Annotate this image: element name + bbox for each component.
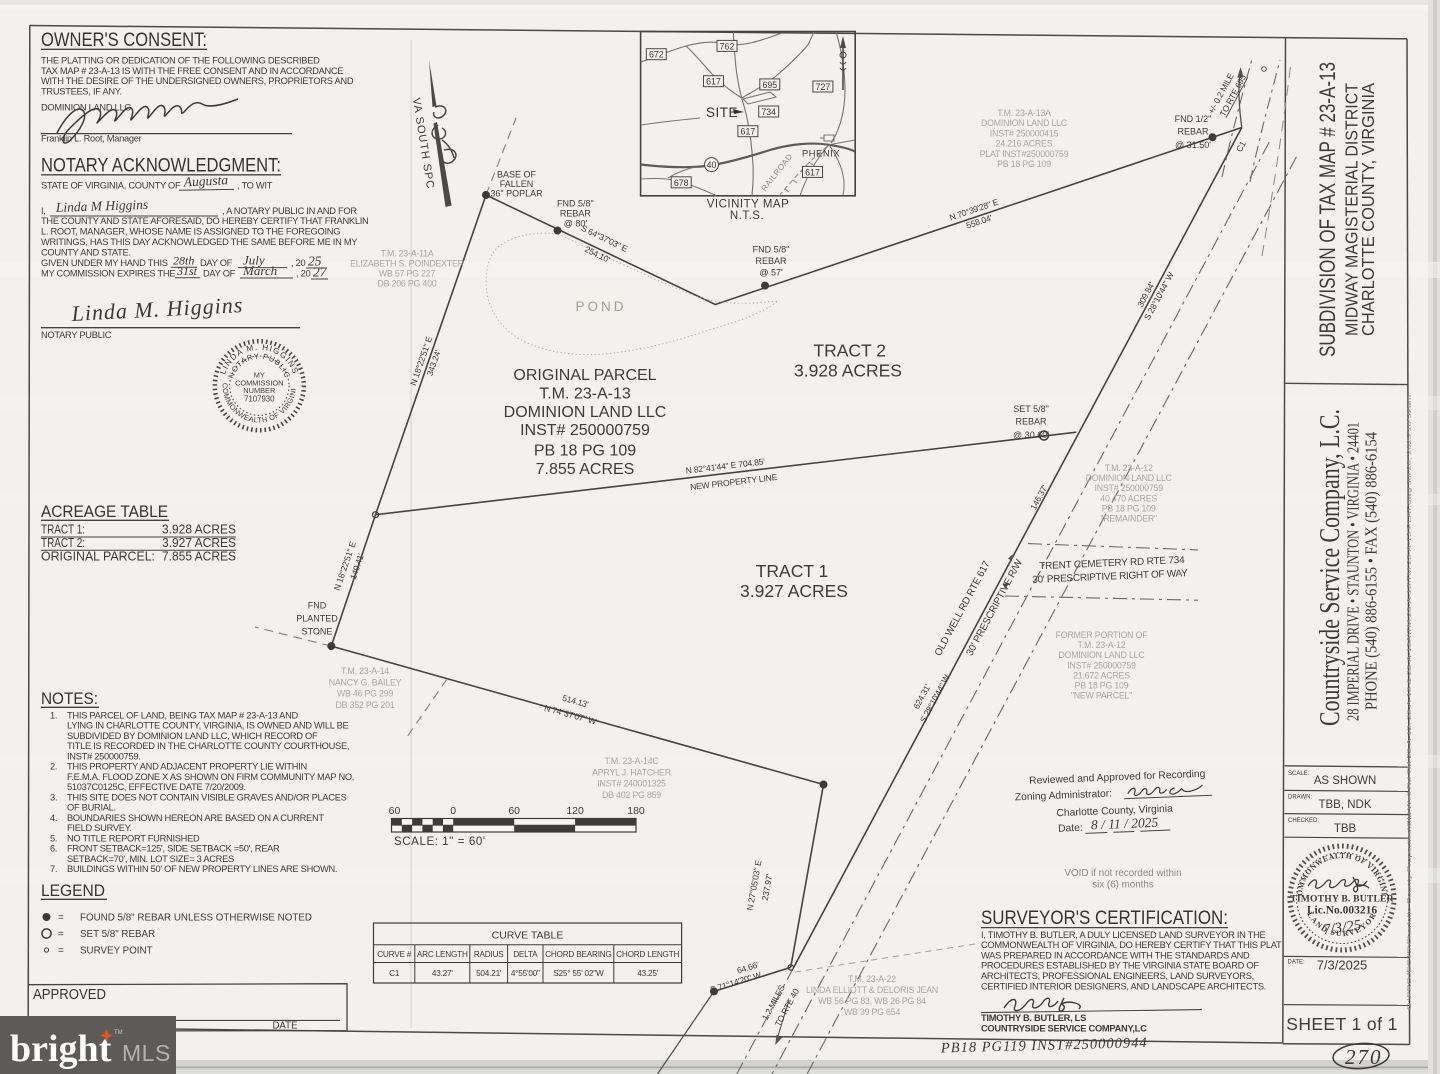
svg-text:617: 617 <box>706 77 721 87</box>
svg-text:ACREAGE TABLE: ACREAGE TABLE <box>41 503 168 521</box>
svg-text:@ 31.50': @ 31.50' <box>1175 140 1211 150</box>
svg-text:TIMOTHY B. BUTLER, LS: TIMOTHY B. BUTLER, LS <box>981 1013 1086 1023</box>
svg-text:Franklin L. Root, Manager: Franklin L. Root, Manager <box>41 134 142 144</box>
svg-text:SURVEYOR'S CERTIFICATION:: SURVEYOR'S CERTIFICATION: <box>981 908 1228 929</box>
svg-text:REBAR: REBAR <box>1015 417 1047 427</box>
svg-text:, 20: , 20 <box>296 268 310 278</box>
svg-text:bright: bright <box>10 1028 112 1070</box>
svg-text:G:\PROJECTS\Charlotte County P: G:\PROJECTS\Charlotte County Properties\… <box>1407 394 1413 1010</box>
svg-text:=: = <box>58 946 64 957</box>
svg-text:F.E.M.A. FLOOD ZONE X AS SHOWN: F.E.M.A. FLOOD ZONE X AS SHOWN ON FIRM C… <box>67 772 354 782</box>
svg-text:3.928 ACRES: 3.928 ACRES <box>162 523 236 537</box>
svg-text:CHORD LENGTH: CHORD LENGTH <box>616 950 679 959</box>
svg-text:504.21': 504.21' <box>476 969 502 978</box>
svg-text:LYING IN CHARLOTTE COUNTY, VIR: LYING IN CHARLOTTE COUNTY, VIRGINIA, IS … <box>67 721 348 731</box>
svg-text:51037C0125C, EFFECTIVE DATE 7/: 51037C0125C, EFFECTIVE DATE 7/20/2009. <box>67 782 246 792</box>
svg-text:734: 734 <box>761 107 776 117</box>
svg-text:FORMER PORTION OF: FORMER PORTION OF <box>1056 630 1149 640</box>
svg-text:DB 206 PG 400: DB 206 PG 400 <box>377 279 436 289</box>
svg-text:SETBACK=70', MIN. LOT SIZE= 3: SETBACK=70', MIN. LOT SIZE= 3 ACRES <box>67 854 234 864</box>
svg-text:SHEET 1 of 1: SHEET 1 of 1 <box>1286 1014 1397 1034</box>
svg-text:8 / 11 / 2025: 8 / 11 / 2025 <box>1091 815 1159 833</box>
svg-text:NOTES:: NOTES: <box>41 690 98 708</box>
svg-text:VOID if not recorded within: VOID if not recorded within <box>1064 868 1181 879</box>
svg-text:PB 18 PG 109: PB 18 PG 109 <box>997 159 1051 169</box>
svg-text:DB 402 PG 859: DB 402 PG 859 <box>602 790 661 800</box>
svg-text:, TO WIT: , TO WIT <box>237 181 273 191</box>
svg-text:120: 120 <box>566 805 584 817</box>
svg-text:LINDA ELLIOTT & DELORIS JEAN: LINDA ELLIOTT & DELORIS JEAN <box>806 985 938 995</box>
svg-text:43.27': 43.27' <box>432 969 453 978</box>
svg-text:THIS PROPERTY AND ADJACENT PRO: THIS PROPERTY AND ADJACENT PROPERTY LIE … <box>67 762 307 772</box>
svg-text:I,: I, <box>41 206 46 216</box>
svg-text:CERTIFIED INTERIOR DESIGNERS,: CERTIFIED INTERIOR DESIGNERS, AND LANDSC… <box>981 981 1266 991</box>
svg-text:TRACT 2: TRACT 2 <box>813 340 886 360</box>
svg-text:THE PLATTING OR DEDICATION OF: THE PLATTING OR DEDICATION OF THE FOLLOW… <box>41 56 320 66</box>
svg-text:, A NOTARY PUBLIC IN AND FOR: , A NOTARY PUBLIC IN AND FOR <box>222 206 357 216</box>
svg-text:WB 56 PG 83, WB 26 PG 84: WB 56 PG 83, WB 26 PG 84 <box>818 996 926 1006</box>
svg-text:FND 1/2": FND 1/2" <box>1175 114 1212 124</box>
svg-text:SITE: SITE <box>706 105 738 120</box>
svg-text:DAY OF: DAY OF <box>203 268 236 278</box>
svg-text:TRACT 1:: TRACT 1: <box>41 523 85 537</box>
svg-text:CHORD BEARING: CHORD BEARING <box>545 950 612 959</box>
svg-text:BOUNDARIES SHOWN HEREON ARE BA: BOUNDARIES SHOWN HEREON ARE BASED ON A C… <box>67 813 324 823</box>
svg-text:SET 5/8" REBAR: SET 5/8" REBAR <box>80 929 155 940</box>
svg-text:LEGEND: LEGEND <box>41 882 105 900</box>
svg-text:NOTARY ACKNOWLEDGMENT:: NOTARY ACKNOWLEDGMENT: <box>41 156 281 177</box>
svg-text:3.928 ACRES: 3.928 ACRES <box>794 360 902 380</box>
svg-text:762: 762 <box>720 41 735 51</box>
svg-text:T.M. 23-A-13A: T.M. 23-A-13A <box>997 108 1051 118</box>
svg-text:OF BURIAL.: OF BURIAL. <box>67 803 116 813</box>
svg-text:I, TIMOTHY B. BUTLER, A DULY L: I, TIMOTHY B. BUTLER, A DULY LICENSED LA… <box>981 930 1266 940</box>
svg-text:21.672 ACRES: 21.672 ACRES <box>1073 670 1130 680</box>
svg-text:PLANTED: PLANTED <box>296 614 338 624</box>
svg-text:COUNTY AND STATE.: COUNTY AND STATE. <box>41 248 131 258</box>
svg-text:THIS PARCEL OF LAND, BEING TAX: THIS PARCEL OF LAND, BEING TAX MAP # 23-… <box>67 710 298 720</box>
svg-text:TITLE IS RECORDED IN THE CHARL: TITLE IS RECORDED IN THE CHARLOTTE COUNT… <box>67 741 349 751</box>
svg-text:COUNTRYSIDE SERVICE COMPANY,LC: COUNTRYSIDE SERVICE COMPANY,LC <box>981 1024 1147 1034</box>
svg-text:FIELD SURVEY.: FIELD SURVEY. <box>67 823 132 833</box>
svg-text:REBAR: REBAR <box>560 209 592 219</box>
svg-text:six (6) months: six (6) months <box>1092 880 1154 891</box>
svg-text:OWNER'S CONSENT:: OWNER'S CONSENT: <box>41 30 207 51</box>
svg-text:2.: 2. <box>50 762 57 772</box>
svg-text:POND: POND <box>575 299 626 314</box>
svg-text:DOMINION LAND LLC: DOMINION LAND LLC <box>1086 473 1173 483</box>
svg-text:678: 678 <box>674 178 689 188</box>
svg-text:INST# 240001325: INST# 240001325 <box>597 779 666 789</box>
svg-text:27: 27 <box>313 264 328 279</box>
svg-text:3.: 3. <box>50 792 57 802</box>
svg-text:FND 5/8": FND 5/8" <box>753 245 790 255</box>
svg-text:24.216 ACRES: 24.216 ACRES <box>996 139 1053 149</box>
svg-text:T.M. 23-A-11A: T.M. 23-A-11A <box>381 249 434 259</box>
svg-text:FALLEN: FALLEN <box>500 179 534 189</box>
svg-text:THIS SITE DOES NOT CONTAIN VIS: THIS SITE DOES NOT CONTAIN VISIBLE GRAVE… <box>67 792 347 802</box>
svg-text:March: March <box>242 263 277 278</box>
svg-text:TBB: TBB <box>1334 823 1357 835</box>
svg-text:INST# 250000759: INST# 250000759 <box>1067 660 1136 670</box>
svg-text:SCALE:: SCALE: <box>1288 771 1310 777</box>
svg-text:T.M. 23-A-22: T.M. 23-A-22 <box>848 974 896 984</box>
svg-text:PHENIX: PHENIX <box>802 149 841 160</box>
svg-text:FOUND 5/8" REBAR UNLESS OTHERW: FOUND 5/8" REBAR UNLESS OTHERWISE NOTED <box>80 913 312 924</box>
svg-text:SCALE: 1" = 60': SCALE: 1" = 60' <box>394 836 486 848</box>
svg-text:CHARLOTTE COUNTY, VIRGINIA: CHARLOTTE COUNTY, VIRGINIA <box>1358 83 1378 336</box>
svg-text:DOMINION LAND LLC: DOMINION LAND LLC <box>1058 650 1145 660</box>
svg-text:INST# 250000759: INST# 250000759 <box>1094 483 1163 493</box>
svg-text:WB 39 PG 654: WB 39 PG 654 <box>844 1007 901 1017</box>
svg-text:7.: 7. <box>50 864 57 874</box>
svg-text:S25° 55' 02"W: S25° 55' 02"W <box>553 969 604 978</box>
svg-text:@ 30.60': @ 30.60' <box>1013 430 1049 440</box>
svg-text:=: = <box>58 929 64 940</box>
svg-text:PHONE (540) 886-6155 • FAX (5: PHONE (540) 886-6155 • FAX (540) 886-615… <box>1362 432 1381 710</box>
svg-text:TIMOTHY B. BUTLER: TIMOTHY B. BUTLER <box>1290 894 1394 905</box>
svg-text:ARCHITECTS, PROFESSIONAL ENGIN: ARCHITECTS, PROFESSIONAL ENGINEERS, LAND… <box>981 971 1254 981</box>
svg-text:695: 695 <box>762 80 777 90</box>
svg-text:FRONT SETBACK=125', SIDE SETBA: FRONT SETBACK=125', SIDE SETBACK =50', R… <box>67 844 280 854</box>
svg-text:PLAT INST#250000759: PLAT INST#250000759 <box>980 149 1069 159</box>
svg-text:40.470 ACRES: 40.470 ACRES <box>1100 493 1157 503</box>
svg-text:DRAWN:: DRAWN: <box>1288 795 1312 801</box>
svg-text:WB 46 PG 299: WB 46 PG 299 <box>337 689 394 699</box>
svg-text:40: 40 <box>707 160 717 170</box>
svg-text:MLS: MLS <box>122 1040 171 1066</box>
svg-text:SURVEY POINT: SURVEY POINT <box>80 946 153 957</box>
svg-text:36" POPLAR: 36" POPLAR <box>490 189 543 199</box>
svg-text:T.M. 23-A-13: T.M. 23-A-13 <box>539 386 631 403</box>
svg-text:GIVEN UNDER MY HAND THIS: GIVEN UNDER MY HAND THIS <box>41 258 168 268</box>
svg-text:DB 352 PG 201: DB 352 PG 201 <box>335 700 394 710</box>
svg-text:31st: 31st <box>176 264 198 278</box>
svg-text:TBB, NDK: TBB, NDK <box>1318 799 1371 811</box>
svg-text:VICINITY MAP: VICINITY MAP <box>707 199 789 211</box>
svg-text:DOMINION LAND LLC: DOMINION LAND LLC <box>504 404 667 421</box>
svg-text:3.927 ACRES: 3.927 ACRES <box>162 536 236 550</box>
svg-text:WRITINGS, HAS THIS DAY ACKNOWL: WRITINGS, HAS THIS DAY ACKNOWLEDGED THE … <box>41 237 357 247</box>
svg-text:TM: TM <box>114 1030 123 1036</box>
svg-text:CURVE TABLE: CURVE TABLE <box>492 930 564 942</box>
svg-text:NO TITLE REPORT FURNISHED: NO TITLE REPORT FURNISHED <box>67 833 200 843</box>
svg-text:4.: 4. <box>50 813 57 823</box>
svg-text:PROCEDURES ESTABLISHED BY THE: PROCEDURES ESTABLISHED BY THE VIRGINIA S… <box>981 961 1259 971</box>
svg-text:TRACT 1: TRACT 1 <box>756 561 829 581</box>
svg-text:T.M. 23-A-12: T.M. 23-A-12 <box>1078 640 1126 650</box>
svg-text:ARC LENGTH: ARC LENGTH <box>417 950 468 959</box>
svg-text:0: 0 <box>450 805 456 817</box>
svg-text:APRYL J. HATCHER: APRYL J. HATCHER <box>592 767 671 777</box>
svg-text:T.M. 23-A-12: T.M. 23-A-12 <box>1105 463 1153 473</box>
svg-text:CHECKED:: CHECKED: <box>1288 818 1319 824</box>
svg-text:60: 60 <box>389 805 401 817</box>
svg-text:672: 672 <box>649 50 664 60</box>
svg-text:7/3/2025: 7/3/2025 <box>1317 958 1368 973</box>
svg-text:DAY OF: DAY OF <box>200 258 233 268</box>
svg-text:ELIZABETH S. POINDEXTER: ELIZABETH S. POINDEXTER <box>350 259 464 269</box>
svg-text:RADIUS: RADIUS <box>474 950 504 959</box>
svg-text:Countryside Service Company, L: Countryside Service Company, L.C. <box>1314 409 1346 726</box>
svg-text:THE COUNTY AND STATE AFORESAID: THE COUNTY AND STATE AFORESAID, DO HEREB… <box>41 216 368 226</box>
svg-text:Date:: Date: <box>1058 823 1083 835</box>
svg-text:WB 57 PG 227: WB 57 PG 227 <box>379 269 436 279</box>
svg-text:5.: 5. <box>50 833 57 843</box>
svg-text:APPROVED: APPROVED <box>33 986 106 1003</box>
svg-text:DATE:: DATE: <box>1288 960 1306 966</box>
svg-text:ORIGINAL PARCEL:: ORIGINAL PARCEL: <box>41 550 155 564</box>
svg-text:TAX MAP # 23-A-13 IS WITH THE: TAX MAP # 23-A-13 IS WITH THE FREE CONSE… <box>41 66 343 76</box>
svg-text:WITH THE DESIRE OF THE UNDERSI: WITH THE DESIRE OF THE UNDERSIGNED OWNER… <box>41 76 354 86</box>
svg-text:ORIGINAL PARCEL: ORIGINAL PARCEL <box>513 367 656 384</box>
svg-text:CURVE #: CURVE # <box>377 950 412 959</box>
svg-text:7107930: 7107930 <box>244 395 275 404</box>
svg-text:=: = <box>58 913 64 924</box>
svg-text:COMMONWEALTH OF VIRGINIA, DO H: COMMONWEALTH OF VIRGINIA, DO HEREBY CERT… <box>981 940 1282 950</box>
svg-text:STATE OF VIRGINIA, COUNTY OF: STATE OF VIRGINIA, COUNTY OF <box>41 181 181 191</box>
svg-text:REBAR: REBAR <box>1177 127 1209 137</box>
svg-text:REBAR: REBAR <box>755 256 787 266</box>
svg-text:727: 727 <box>816 82 831 92</box>
svg-text:@ 57': @ 57' <box>759 268 783 278</box>
svg-text:4°55'00": 4°55'00" <box>511 969 540 978</box>
svg-text:Augusta: Augusta <box>182 172 228 189</box>
svg-text:TRACT 2:: TRACT 2: <box>41 536 85 550</box>
svg-text:PB 18 PG 109: PB 18 PG 109 <box>1075 681 1129 691</box>
svg-text:1.: 1. <box>50 710 57 720</box>
svg-text:7.855 ACRES: 7.855 ACRES <box>162 550 236 564</box>
svg-text:28 IMPERIAL DRIVE • STAUNTON •: 28 IMPERIAL DRIVE • STAUNTON • VIRGINIA … <box>1344 422 1363 721</box>
svg-text:C1: C1 <box>389 969 400 978</box>
svg-text:7.855 ACRES: 7.855 ACRES <box>536 461 635 478</box>
svg-text:Lic.No.003216: Lic.No.003216 <box>1307 905 1378 917</box>
svg-text:DOMINION LAND LLC: DOMINION LAND LLC <box>981 118 1068 128</box>
svg-text:DOMINION LAND LLC: DOMINION LAND LLC <box>41 103 131 113</box>
svg-text:L. ROOT, MANAGER, WHOSE NAME I: L. ROOT, MANAGER, WHOSE NAME IS ASSIGNED… <box>41 227 340 237</box>
svg-text:43.25': 43.25' <box>637 969 658 978</box>
svg-text:INST# 250000759.: INST# 250000759. <box>67 751 141 761</box>
svg-text:BUILDINGS WITHIN 50' OF NEW PR: BUILDINGS WITHIN 50' OF NEW PROPERTY LIN… <box>67 864 337 874</box>
svg-text:"NEW PARCEL": "NEW PARCEL" <box>1071 691 1132 701</box>
svg-text:, 20: , 20 <box>291 258 305 268</box>
svg-text:NANCY G. BAILEY: NANCY G. BAILEY <box>329 677 402 687</box>
svg-text:6.: 6. <box>50 844 57 854</box>
svg-text:T.M. 23-A-14C: T.M. 23-A-14C <box>604 756 659 766</box>
svg-text:SUBDIVISION OF TAX MAP # 23-A-: SUBDIVISION OF TAX MAP # 23-A-13 <box>1315 62 1340 357</box>
svg-text:"REMAINDER": "REMAINDER" <box>1100 514 1157 524</box>
svg-text:AS SHOWN: AS SHOWN <box>1314 775 1377 787</box>
svg-text:617: 617 <box>741 127 756 137</box>
svg-text:T.M. 23-A-14: T.M. 23-A-14 <box>341 666 389 676</box>
svg-text:WAS PREPARED IN ACCORDANCE WIT: WAS PREPARED IN ACCORDANCE WITH THE STAN… <box>981 950 1250 960</box>
svg-text:INST# 250000415: INST# 250000415 <box>990 128 1059 138</box>
svg-text:SUBDIVIDED BY DOMINION LAND LL: SUBDIVIDED BY DOMINION LAND LLC, WHICH R… <box>67 731 318 741</box>
svg-text:60: 60 <box>508 805 520 817</box>
svg-text:STONE: STONE <box>302 627 333 637</box>
svg-text:SET 5/8": SET 5/8" <box>1013 404 1049 414</box>
svg-text:BASE OF: BASE OF <box>497 170 537 180</box>
svg-text:INST# 250000759: INST# 250000759 <box>520 422 650 439</box>
svg-text:180: 180 <box>627 805 645 817</box>
svg-text:TRUSTEES, IF ANY.: TRUSTEES, IF ANY. <box>41 86 122 96</box>
svg-text:PB 18 PG 109: PB 18 PG 109 <box>1102 503 1156 513</box>
svg-text:3.927 ACRES: 3.927 ACRES <box>740 581 848 601</box>
svg-text:N.T.S.: N.T.S. <box>730 210 764 222</box>
svg-text:NOTARY PUBLIC: NOTARY PUBLIC <box>41 330 112 340</box>
svg-text:MY COMMISSION EXPIRES THE: MY COMMISSION EXPIRES THE <box>41 268 175 278</box>
svg-text:PB 18 PG 109: PB 18 PG 109 <box>534 442 636 459</box>
svg-text:DELTA: DELTA <box>513 950 538 959</box>
svg-text:617: 617 <box>805 167 820 177</box>
svg-text:FND: FND <box>308 601 327 611</box>
svg-text:FND 5/8": FND 5/8" <box>557 199 594 209</box>
svg-text:DATE: DATE <box>272 1021 298 1032</box>
